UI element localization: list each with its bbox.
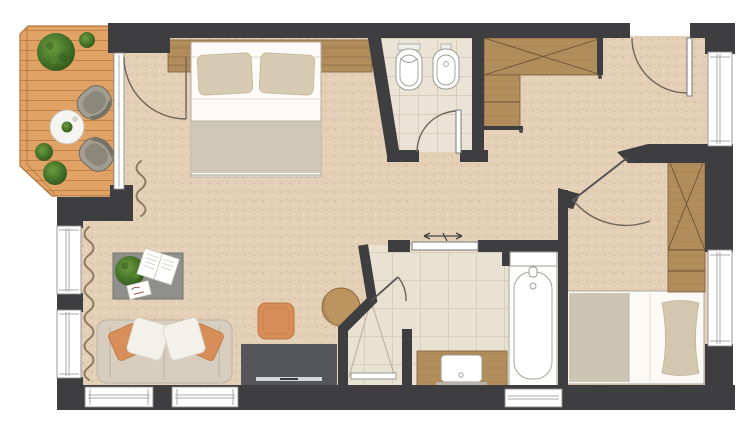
balcony-glass-door xyxy=(114,53,124,189)
bed-blanket xyxy=(191,121,321,173)
wall-wc-right xyxy=(472,32,484,162)
bathtub xyxy=(509,266,557,386)
window-left-2 xyxy=(57,310,81,378)
plant-small-2 xyxy=(35,143,53,161)
bathtub-shelf-niche xyxy=(510,252,557,266)
wall-bottom-left-corner xyxy=(57,377,83,410)
hall-closet-x xyxy=(484,38,602,75)
sofa xyxy=(97,317,232,383)
outdoor-table xyxy=(50,110,84,144)
wall-wc-stub-right xyxy=(460,150,488,162)
wall-bath-stub-left xyxy=(388,240,410,252)
wall-bath-bedroom-divider xyxy=(558,190,568,388)
floor-plan-canvas xyxy=(0,0,754,435)
single-bed-pillow xyxy=(662,301,699,376)
wall-wc-stub-left xyxy=(387,150,419,162)
window-bottom-1 xyxy=(85,387,153,407)
balcony xyxy=(20,26,120,196)
ottoman-pouf xyxy=(258,303,294,339)
plant-large xyxy=(37,33,75,71)
pivot-dot-cabinet xyxy=(519,129,523,133)
wall-left-pier-mid xyxy=(57,293,83,312)
floor-plan xyxy=(0,0,754,435)
pivot-dot-closet xyxy=(598,75,602,79)
single-bed-blanket xyxy=(569,293,629,382)
wall-bath-top xyxy=(478,240,560,252)
window-right-1 xyxy=(708,52,732,146)
bed-pillow-left xyxy=(197,53,253,96)
vanity xyxy=(417,351,507,387)
wall-bottom xyxy=(57,385,735,410)
plant-medium xyxy=(43,161,67,185)
coffee-table xyxy=(113,248,183,299)
wall-bath-niche-stub xyxy=(502,246,510,266)
bathtub-faucet xyxy=(529,267,537,277)
hall-cabinet xyxy=(484,75,520,128)
single-bed xyxy=(567,291,704,384)
wall-right-pier xyxy=(705,144,733,252)
vanity-sink xyxy=(441,355,482,382)
window-bottom-2 xyxy=(172,387,238,407)
window-right-2 xyxy=(708,250,732,346)
window-left-1 xyxy=(57,226,81,294)
tall-wardrobe xyxy=(668,158,705,292)
bed-pillow-right xyxy=(259,53,315,96)
wall-cabinet-cap xyxy=(479,126,523,130)
tv-sideboard xyxy=(241,344,337,386)
window-bathroom xyxy=(505,389,562,407)
double-bed xyxy=(191,42,321,177)
wall-closet-end-cap xyxy=(597,38,603,75)
shower-drain xyxy=(351,373,396,379)
plant-small xyxy=(79,32,95,48)
